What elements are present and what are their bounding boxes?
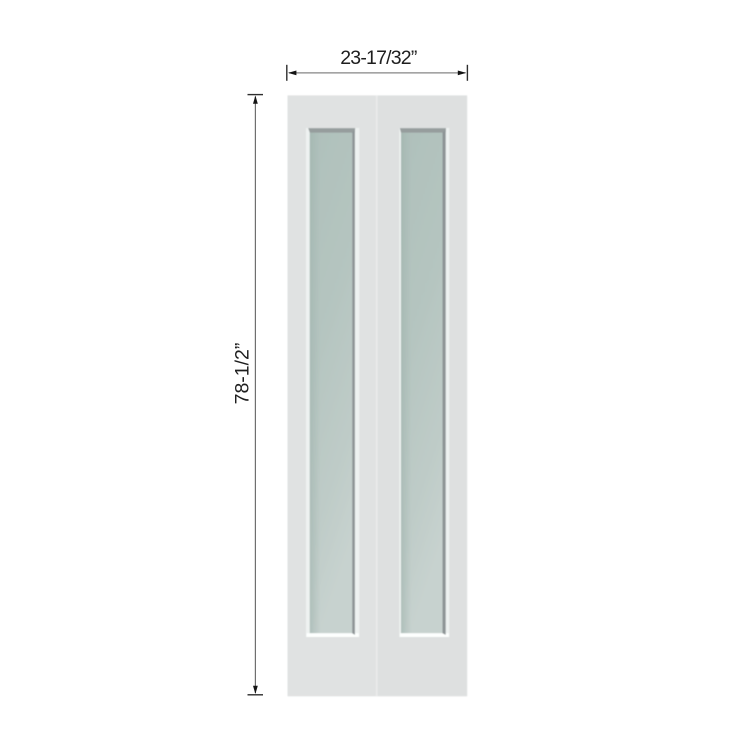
svg-text:78-1/2”: 78-1/2”	[232, 343, 254, 405]
svg-text:23-17/32”: 23-17/32”	[340, 47, 417, 69]
